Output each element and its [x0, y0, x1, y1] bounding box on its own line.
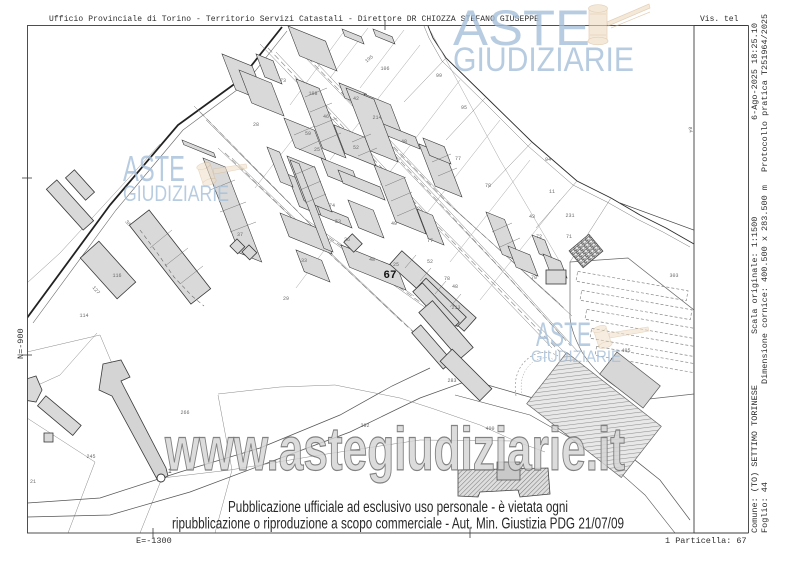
svg-text:70: 70 — [531, 275, 537, 281]
svg-text:116: 116 — [112, 273, 121, 279]
svg-text:73: 73 — [280, 78, 286, 84]
svg-text:E=-1300: E=-1300 — [136, 536, 172, 546]
svg-text:71: 71 — [566, 234, 572, 240]
svg-text:42: 42 — [353, 96, 359, 102]
svg-text:GIUDIZIARIE: GIUDIZIARIE — [123, 181, 229, 206]
svg-text:11: 11 — [549, 189, 555, 195]
svg-text:78: 78 — [485, 183, 491, 189]
svg-text:52: 52 — [427, 259, 433, 265]
svg-text:495: 495 — [621, 348, 630, 354]
svg-text:www.astegiudiziarie.it: www.astegiudiziarie.it — [164, 415, 625, 483]
svg-text:46: 46 — [323, 114, 329, 120]
svg-text:67: 67 — [383, 270, 396, 282]
svg-text:33: 33 — [301, 258, 307, 264]
svg-text:Pubblicazione ufficiale ad esc: Pubblicazione ufficiale ad esclusivo uso… — [228, 499, 568, 516]
svg-text:1 Particella: 67: 1 Particella: 67 — [665, 536, 747, 546]
svg-text:245: 245 — [86, 454, 95, 460]
svg-text:95: 95 — [461, 105, 467, 111]
svg-text:213: 213 — [451, 305, 460, 311]
svg-text:303: 303 — [669, 273, 678, 279]
svg-text:59: 59 — [305, 131, 311, 137]
svg-text:283: 283 — [447, 378, 456, 384]
svg-text:48: 48 — [452, 284, 458, 290]
svg-text:53: 53 — [335, 219, 341, 225]
svg-text:72: 72 — [536, 234, 542, 240]
svg-text:99: 99 — [436, 73, 442, 79]
svg-text:21: 21 — [30, 479, 36, 485]
svg-text:52: 52 — [353, 145, 359, 151]
svg-text:26: 26 — [344, 237, 350, 243]
svg-text:Vis. tel: Vis. tel — [700, 15, 739, 24]
svg-text:Foglio: 44: Foglio: 44 — [760, 482, 770, 533]
svg-text:43: 43 — [529, 214, 535, 220]
svg-text:84: 84 — [687, 126, 694, 133]
svg-text:37: 37 — [237, 232, 243, 238]
svg-text:48: 48 — [401, 139, 407, 145]
svg-text:29: 29 — [283, 296, 289, 302]
svg-text:108: 108 — [308, 91, 317, 97]
svg-text:214: 214 — [372, 115, 381, 121]
svg-text:49: 49 — [391, 221, 397, 227]
svg-text:28: 28 — [253, 122, 259, 128]
svg-text:GIUDIZIARIE: GIUDIZIARIE — [453, 41, 634, 79]
svg-text:114: 114 — [79, 313, 88, 319]
svg-text:25: 25 — [393, 262, 399, 268]
svg-text:94: 94 — [545, 157, 551, 163]
svg-text:Scala originale: 1:1500: Scala originale: 1:1500 — [750, 217, 760, 334]
svg-text:48: 48 — [369, 257, 375, 263]
svg-text:GIUDIZIARIE: GIUDIZIARIE — [531, 347, 621, 366]
svg-text:ripubblicazione o riproduzione: ripubblicazione o riproduzione a scopo c… — [172, 516, 624, 533]
svg-text:25: 25 — [314, 147, 320, 153]
svg-text:N=-900: N=-900 — [16, 328, 26, 359]
svg-text:77: 77 — [455, 156, 461, 162]
svg-text:Dimensione cornice: 400.500 x: Dimensione cornice: 400.500 x 283.500 m — [760, 185, 770, 384]
svg-text:6-Ago-2025 18:25.10: 6-Ago-2025 18:25.10 — [750, 23, 760, 120]
svg-text:74: 74 — [329, 203, 335, 209]
svg-text:106: 106 — [380, 66, 389, 72]
svg-text:231: 231 — [565, 213, 574, 219]
svg-text:Comune: (TO) SETTIMO TORINESE: Comune: (TO) SETTIMO TORINESE — [750, 385, 760, 533]
svg-text:78: 78 — [444, 276, 450, 282]
svg-text:Protocollo pratica T251964/202: Protocollo pratica T251964/2025 — [760, 14, 770, 172]
svg-text:77: 77 — [427, 238, 433, 244]
